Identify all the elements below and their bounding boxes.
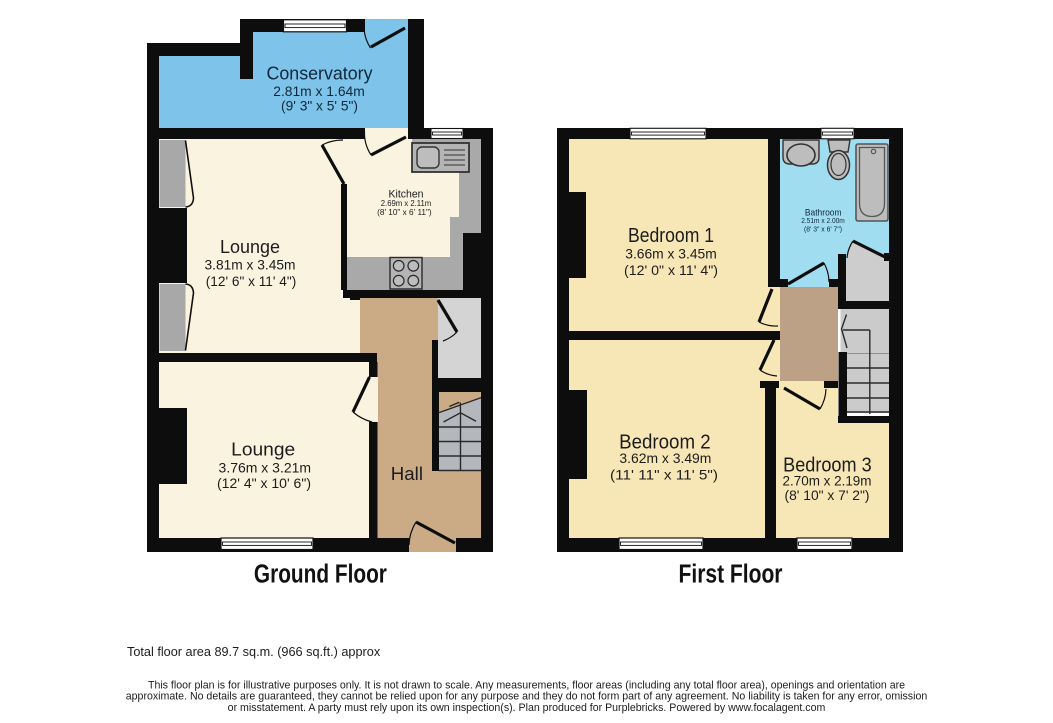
svg-text:Bathroom: Bathroom	[805, 207, 842, 217]
svg-text:Bedroom 1: Bedroom 1	[628, 224, 714, 247]
svg-text:(12' 6" x 11' 4"): (12' 6" x 11' 4")	[206, 274, 297, 289]
svg-text:Conservatory: Conservatory	[267, 62, 374, 83]
svg-text:This floor plan is for illustr: This floor plan is for illustrative purp…	[148, 679, 905, 691]
svg-text:Total floor area 89.7 sq.m. (9: Total floor area 89.7 sq.m. (966 sq.ft.)…	[127, 645, 381, 659]
svg-text:3.81m x 3.45m: 3.81m x 3.45m	[205, 258, 296, 273]
svg-text:3.66m x 3.45m: 3.66m x 3.45m	[625, 246, 717, 262]
svg-text:3.62m x 3.49m: 3.62m x 3.49m	[619, 450, 711, 466]
svg-text:(11' 11" x 11' 5"): (11' 11" x 11' 5")	[610, 467, 718, 483]
svg-text:(9' 3" x 5' 5"): (9' 3" x 5' 5")	[281, 98, 358, 114]
svg-text:or misstatement. A party must: or misstatement. A party must rely upon …	[228, 702, 826, 714]
svg-text:(8' 10" x 6' 11"): (8' 10" x 6' 11")	[377, 207, 432, 217]
svg-text:approximate. No details are gu: approximate. No details are guaranteed, …	[126, 691, 928, 703]
svg-text:(8' 10" x 7' 2"): (8' 10" x 7' 2")	[785, 488, 870, 503]
svg-text:(12' 0" x 11' 4"): (12' 0" x 11' 4")	[624, 262, 718, 278]
svg-text:Ground Floor: Ground Floor	[254, 560, 387, 588]
svg-text:(8' 3" x 6' 7"): (8' 3" x 6' 7")	[804, 227, 842, 234]
svg-text:First Floor: First Floor	[679, 560, 783, 588]
svg-text:Hall: Hall	[391, 464, 423, 484]
svg-text:2.70m x 2.19m: 2.70m x 2.19m	[783, 474, 872, 489]
svg-text:2.51m x 2.00m: 2.51m x 2.00m	[801, 218, 845, 225]
svg-text:3.76m x 3.21m: 3.76m x 3.21m	[219, 461, 312, 476]
svg-text:Lounge: Lounge	[220, 236, 280, 257]
svg-text:Lounge: Lounge	[231, 439, 295, 459]
svg-text:(12' 4" x 10' 6"): (12' 4" x 10' 6")	[217, 476, 311, 491]
